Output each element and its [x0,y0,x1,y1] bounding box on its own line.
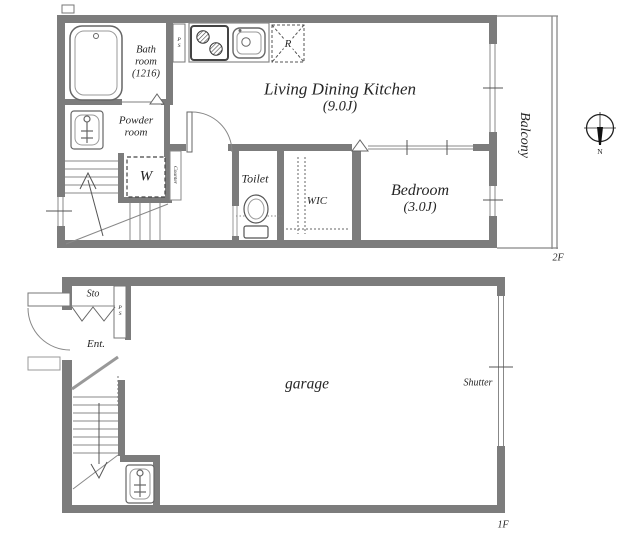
balcony-label: Balcony [516,112,532,158]
entrance-label: Ent. [87,338,105,350]
ldk-door [187,112,232,152]
stair-window [46,197,72,226]
counter-label: Counter [172,166,178,184]
stove-icon [191,26,228,60]
shutter-opening [489,296,513,446]
compass-north-label: N [597,148,602,156]
bathroom-label: Bath room (1216) [132,44,160,79]
bedroom-balcony-window [483,186,503,216]
bedroom-label: Bedroom (3.0J) [391,182,449,216]
fridge-label: R [284,38,293,50]
bath-door [122,94,164,104]
bathtub-icon [70,26,122,100]
toilet-label: Toilet [242,172,269,185]
ldk-balcony-window [483,44,503,132]
stairs-1f-arrow [91,403,107,478]
floor2-label: 2F [552,252,563,263]
wic-label: WIC [307,195,327,207]
compass-icon [584,112,616,145]
sink-icon [233,28,265,58]
utility-basin-icon [126,465,154,503]
washbasin-icon [71,111,103,149]
stairs-1f [73,397,118,489]
ldk-label: Living Dining Kitchen (9.0J) [264,79,416,114]
wic-opening-caret [352,140,368,151]
kitchen-counter [189,23,269,62]
entrance-step [72,357,118,408]
stairs-2f-arrow [80,173,103,236]
floor1-label: 1F [497,519,508,530]
toilet-icon [236,195,282,238]
garage-label: garage [285,375,329,392]
powder-room-label: Powder room [119,115,153,140]
storage-label: Sto [87,288,100,299]
vent-mark [62,5,74,13]
floor-plan: Bath room (1216) Powder room Living Dini… [0,0,619,535]
pipe-space-2f-label: PS [176,37,182,49]
washer-label: W [140,169,153,186]
pipe-space-1f-label: PS [117,305,123,317]
toilet-door [232,206,239,236]
shutter-label: Shutter [464,377,493,388]
bedroom-partition [368,140,473,155]
entrance-door [28,293,70,370]
storage-bifold-doors [72,306,115,321]
